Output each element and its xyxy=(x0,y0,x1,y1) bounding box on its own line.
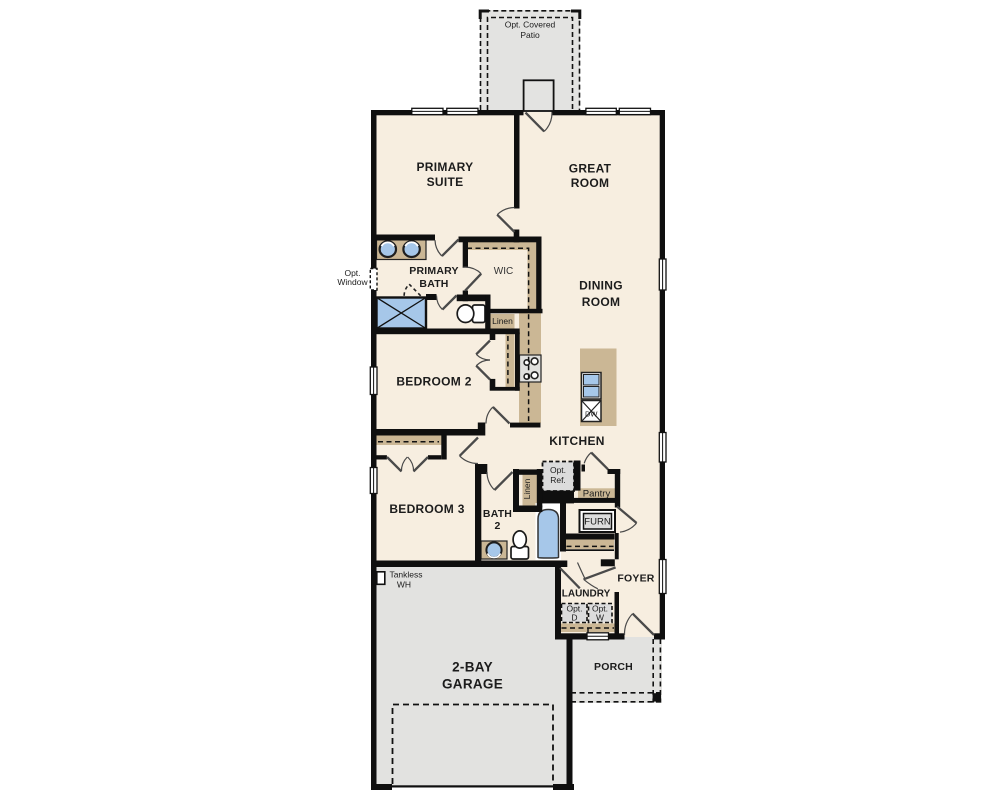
svg-text:Tankless: Tankless xyxy=(389,570,422,580)
svg-text:2: 2 xyxy=(494,520,500,532)
svg-text:D: D xyxy=(571,612,577,622)
svg-text:Opt.: Opt. xyxy=(550,465,566,475)
svg-text:KITCHEN: KITCHEN xyxy=(549,434,604,448)
svg-text:LAUNDRY: LAUNDRY xyxy=(562,589,611,600)
svg-text:DW: DW xyxy=(585,410,598,419)
svg-text:BATH: BATH xyxy=(419,278,448,290)
svg-text:ROOM: ROOM xyxy=(582,295,621,309)
svg-text:Pantry: Pantry xyxy=(583,489,611,500)
svg-text:ROOM: ROOM xyxy=(571,176,610,190)
svg-text:Linen: Linen xyxy=(492,316,513,326)
svg-text:WIC: WIC xyxy=(494,266,513,277)
svg-text:FOYER: FOYER xyxy=(617,573,654,585)
svg-text:PORCH: PORCH xyxy=(594,661,633,673)
svg-text:Ref.: Ref. xyxy=(550,475,566,485)
svg-text:PRIMARY: PRIMARY xyxy=(409,265,458,277)
svg-text:Linen: Linen xyxy=(522,478,532,499)
svg-text:Opt. Covered: Opt. Covered xyxy=(505,20,556,30)
svg-text:DINING: DINING xyxy=(579,279,623,293)
svg-text:GREAT: GREAT xyxy=(569,162,612,176)
svg-text:PRIMARY: PRIMARY xyxy=(417,160,474,174)
svg-text:BEDROOM 3: BEDROOM 3 xyxy=(389,502,464,516)
svg-text:Window: Window xyxy=(337,277,368,287)
svg-text:WH: WH xyxy=(397,580,411,590)
svg-text:2-BAY: 2-BAY xyxy=(452,660,493,675)
svg-text:W: W xyxy=(596,612,604,622)
svg-text:Patio: Patio xyxy=(520,30,540,40)
svg-text:GARAGE: GARAGE xyxy=(442,677,503,692)
svg-text:BEDROOM 2: BEDROOM 2 xyxy=(396,375,471,389)
svg-text:SUITE: SUITE xyxy=(427,175,464,189)
svg-text:BATH: BATH xyxy=(483,508,512,520)
svg-text:FURN: FURN xyxy=(584,517,611,528)
